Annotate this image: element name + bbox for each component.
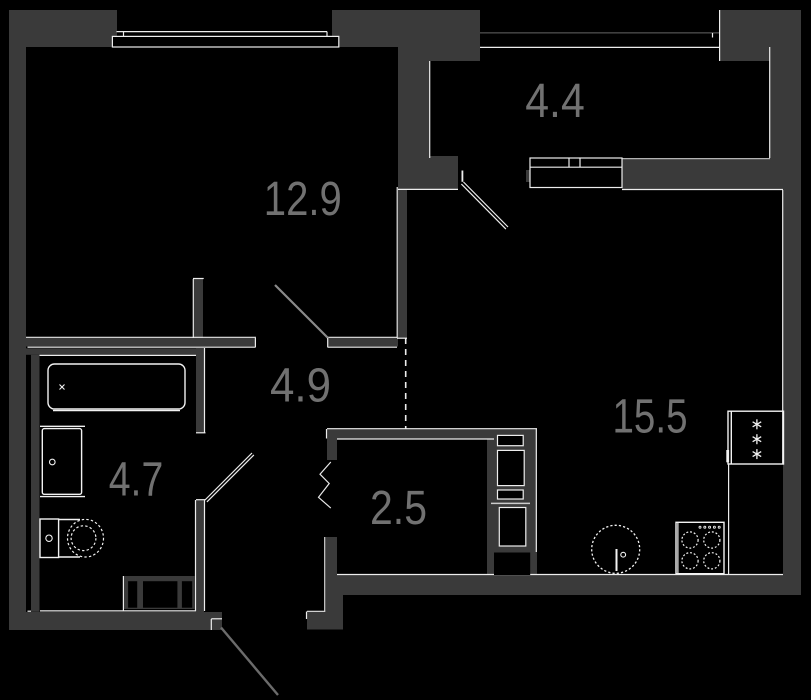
svg-text:4.4: 4.4 — [525, 75, 585, 128]
svg-text:15.5: 15.5 — [613, 391, 688, 444]
svg-text:4.7: 4.7 — [109, 454, 164, 507]
svg-text:2.5: 2.5 — [370, 482, 427, 535]
svg-text:12.9: 12.9 — [264, 173, 342, 226]
svg-text:4.9: 4.9 — [270, 360, 331, 413]
